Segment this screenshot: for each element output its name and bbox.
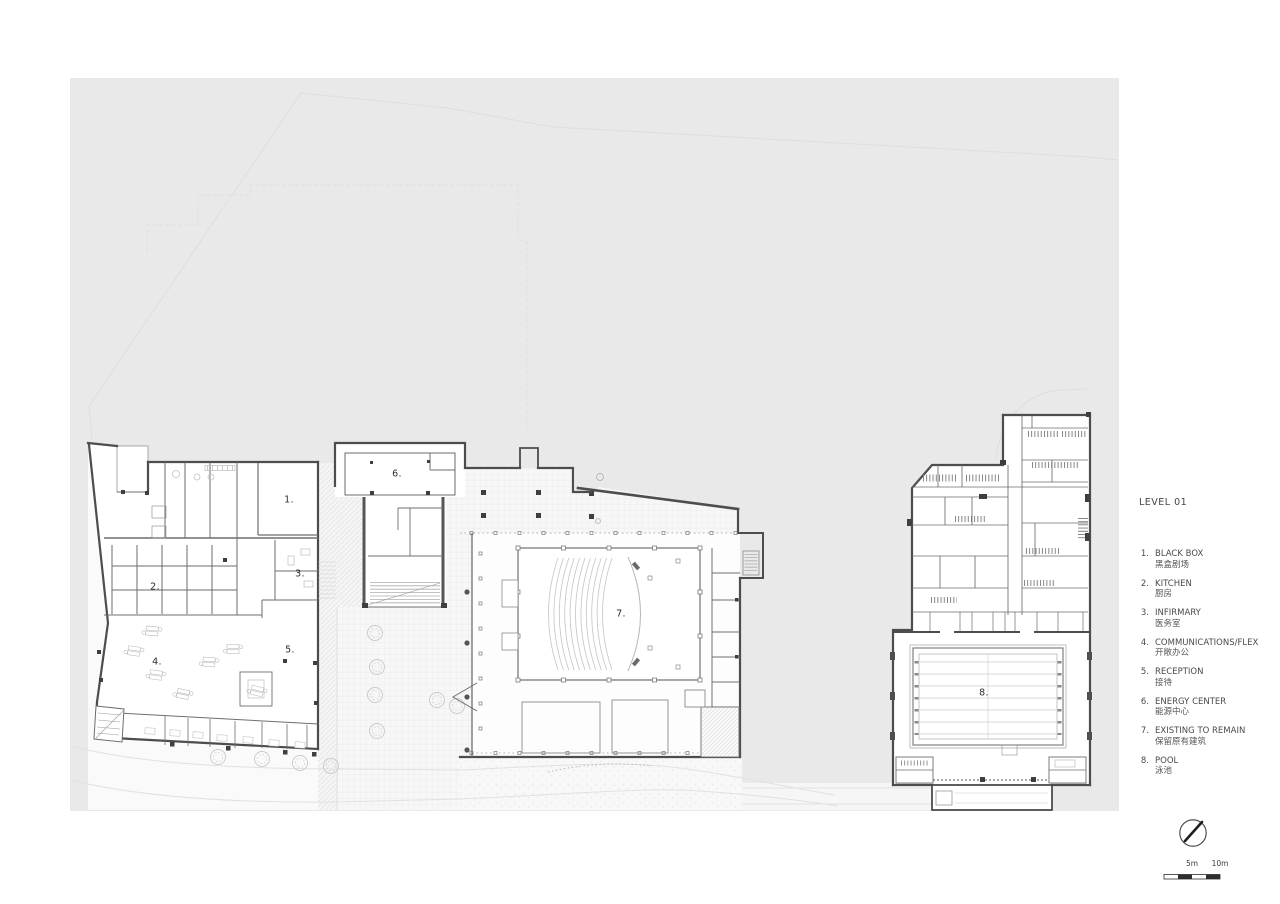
plan-room-label-7: 7. (616, 609, 626, 620)
legend-item-existing-to-remain: 7. EXISTING TO REMAIN保留原有建筑 (1139, 726, 1280, 747)
floor-plan-page: 1. 2. 3. 4. 5. 6. 7. 8. LEVEL 01 1. BLAC… (0, 0, 1280, 904)
legend-item-infirmary: 3. INFIRMARY医务室 (1139, 608, 1280, 629)
plan-room-label-6: 6. (392, 469, 402, 480)
plan-room-label-4: 4. (152, 657, 162, 668)
scale-bar: 5m 10m (1163, 859, 1225, 885)
site-plan-drawing (0, 0, 1280, 904)
scale-label-5m: 5m (1186, 859, 1198, 868)
plan-room-label-1: 1. (284, 495, 294, 506)
plan-room-label-5: 5. (285, 645, 295, 656)
legend-item-pool: 8. POOL泳池 (1139, 756, 1280, 777)
legend-items: 1. BLACK BOX黑盒剧场 2. KITCHEN厨房 3. INFIRMA… (1139, 549, 1280, 777)
legend-title: LEVEL 01 (1139, 497, 1280, 508)
legend-item-energy-center: 6. ENERGY CENTER能源中心 (1139, 697, 1280, 718)
plan-room-label-3: 3. (295, 569, 305, 580)
building-west-wing (88, 443, 336, 757)
legend-item-reception: 5. RECEPTION接待 (1139, 667, 1280, 688)
legend: LEVEL 01 1. BLACK BOX黑盒剧场 2. KITCHEN厨房 3… (1139, 497, 1280, 785)
plan-room-label-2: 2. (150, 582, 160, 593)
scale-label-10m: 10m (1212, 859, 1229, 868)
north-arrow-icon (1176, 816, 1212, 852)
legend-item-black-box: 1. BLACK BOX黑盒剧场 (1139, 549, 1280, 570)
scale-bar-graphic (1163, 873, 1223, 881)
legend-item-communications-flex: 4. COMMUNICATIONS/FLEX开敞办公 (1139, 638, 1280, 659)
plan-room-label-8: 8. (979, 688, 989, 699)
legend-item-kitchen: 2. KITCHEN厨房 (1139, 579, 1280, 600)
